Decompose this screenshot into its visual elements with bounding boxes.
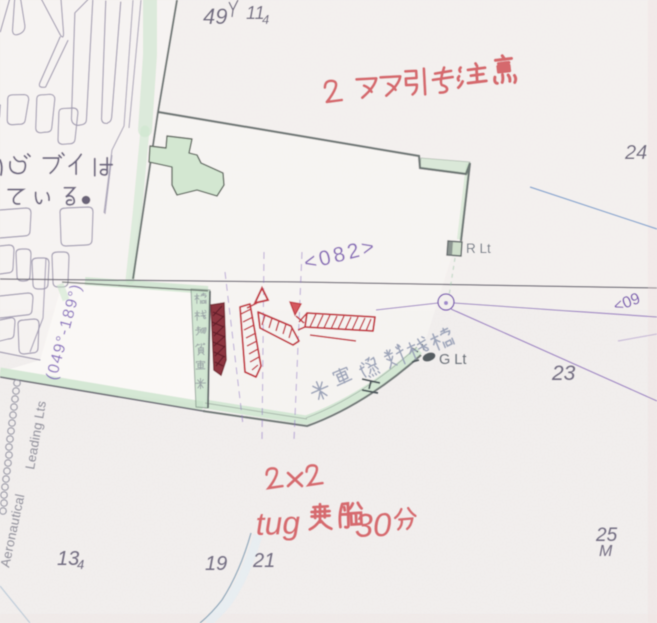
svg-text:tug: tug bbox=[255, 504, 301, 542]
svg-text:21: 21 bbox=[252, 550, 275, 572]
svg-text:13: 13 bbox=[57, 548, 79, 570]
svg-text:R Lt: R Lt bbox=[466, 241, 491, 256]
svg-text:19: 19 bbox=[205, 553, 227, 575]
svg-text:M: M bbox=[599, 543, 613, 560]
svg-text:49: 49 bbox=[203, 4, 227, 29]
svg-text:30: 30 bbox=[354, 506, 393, 544]
svg-text:23: 23 bbox=[551, 362, 576, 385]
svg-text:4: 4 bbox=[262, 12, 269, 27]
svg-text:24: 24 bbox=[624, 142, 647, 164]
svg-text:G Lt: G Lt bbox=[439, 352, 466, 368]
svg-text:4: 4 bbox=[77, 557, 84, 572]
